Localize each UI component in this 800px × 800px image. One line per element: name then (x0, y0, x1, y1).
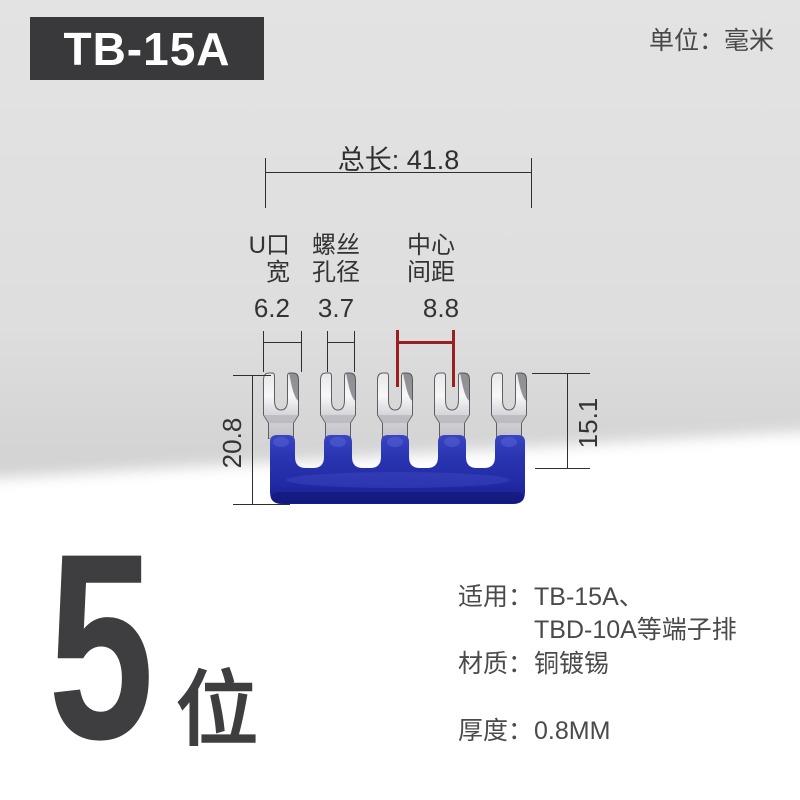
total-length-tick-right (531, 158, 532, 208)
spec-thickness-label: 厚度： (458, 715, 534, 748)
terminal-height-tick-bottom (535, 468, 590, 469)
dim-column-pitch: 中心 间距 8.8 (400, 232, 462, 322)
product-infographic: TB-15A 单位：毫米 总长: 41.8 U口 宽 6.2 螺丝 孔径 3.7… (0, 0, 800, 800)
screw-hole-label-line2: 孔径 (306, 259, 366, 286)
terminal-height-tick-top (532, 373, 590, 374)
screw-hole-crossbar (327, 342, 355, 343)
u-width-label-line1: U口 (232, 232, 290, 259)
terminal-height-value: 15.1 (573, 381, 603, 465)
overall-height-tick-bottom (233, 504, 290, 505)
pitch-tick-left (396, 330, 399, 387)
u-width-value: 6.2 (232, 295, 290, 322)
screw-hole-value: 3.7 (306, 295, 366, 322)
insulator-base (270, 435, 525, 504)
total-length-tick-left (265, 158, 266, 208)
pitch-crossbar (397, 341, 455, 344)
overall-height-line (252, 375, 253, 505)
terminal-height-line (567, 373, 568, 469)
spec-apply-value-line2: TBD-10A等端子排 (534, 614, 737, 647)
overall-height-value: 20.8 (217, 401, 247, 485)
u-width-crossbar (263, 342, 302, 343)
u-width-tick-right (301, 331, 302, 372)
overall-height-tick-top (233, 375, 271, 376)
terminal-strip-image (250, 368, 540, 508)
unit-note: 单位：毫米 (649, 21, 774, 57)
total-length-line (265, 172, 532, 173)
u-width-label-line2: 宽 (232, 259, 290, 286)
spec-material-value: 铜镀锡 (534, 648, 609, 681)
screw-hole-label-line1: 螺丝 (306, 232, 366, 259)
positions-count: 5 (48, 545, 154, 750)
u-width-tick-left (263, 331, 264, 372)
spec-apply-value: TB-15A、 TBD-10A等端子排 (534, 581, 737, 647)
positions-unit: 位 (176, 670, 258, 752)
spec-material-label: 材质： (458, 648, 534, 681)
spec-row-apply: 适用： TB-15A、 TBD-10A等端子排 (458, 581, 737, 647)
screw-hole-tick-left (327, 331, 328, 372)
model-badge: TB-15A (30, 17, 264, 80)
spec-row-thickness: 厚度： 0.8MM (458, 715, 610, 748)
model-badge-text: TB-15A (63, 22, 230, 76)
dim-column-u-width: U口 宽 6.2 (232, 232, 290, 322)
pitch-label-line1: 中心 (400, 232, 462, 259)
spec-apply-value-line1: TB-15A、 (534, 581, 737, 614)
spec-thickness-value: 0.8MM (534, 715, 610, 748)
pitch-tick-right (452, 330, 455, 387)
spec-apply-label: 适用： (458, 581, 534, 647)
spec-row-material: 材质： 铜镀锡 (458, 648, 609, 681)
screw-hole-tick-right (354, 331, 355, 372)
pitch-value: 8.8 (410, 295, 472, 322)
pitch-label-line2: 间距 (400, 259, 462, 286)
dim-column-screw-hole: 螺丝 孔径 3.7 (306, 232, 366, 322)
